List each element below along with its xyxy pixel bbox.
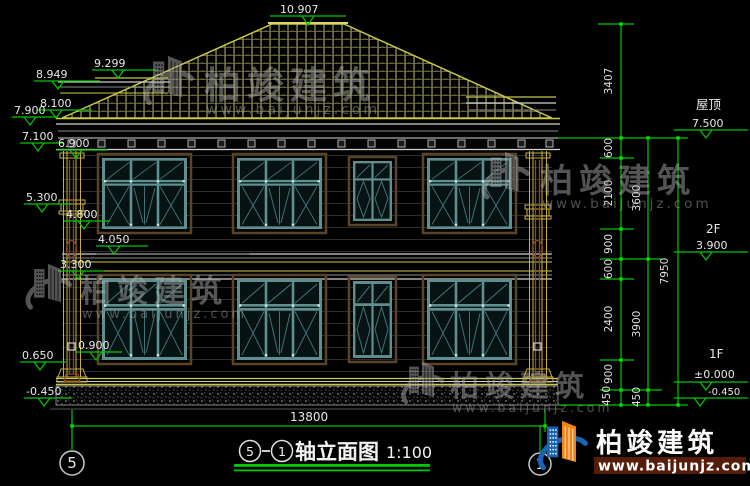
svg-text:7.100: 7.100 — [22, 130, 54, 143]
brand-logo-name: 柏竣建筑 — [596, 428, 718, 459]
right-dimension-lines: 3407 600 2100 900 600 2400 900 450 3600 … — [558, 22, 688, 407]
svg-text:9.299: 9.299 — [94, 57, 126, 70]
right-elevation-flags: 屋顶 7.500 2F 3.900 1F ±0.000 -0.450 — [674, 97, 748, 406]
svg-text:900: 900 — [603, 234, 615, 254]
window-1f-2 — [239, 281, 321, 359]
svg-text:-0.450: -0.450 — [26, 385, 61, 398]
svg-text:2400: 2400 — [603, 306, 615, 333]
flag-2f: 2F 3.900 — [674, 222, 748, 260]
svg-text:柏竣建筑: 柏竣建筑 — [540, 161, 696, 200]
svg-text:3.300: 3.300 — [60, 258, 92, 271]
dim-labels-col1: 3407 600 2100 900 600 2400 900 450 — [601, 68, 615, 406]
svg-text:10.907: 10.907 — [280, 3, 319, 16]
svg-text:www.baijunjz.com: www.baijunjz.com — [82, 307, 247, 322]
svg-text:4.050: 4.050 — [98, 233, 130, 246]
window-2f-1 — [104, 159, 186, 227]
svg-text:3.900: 3.900 — [696, 239, 728, 252]
main-cornice — [56, 118, 560, 151]
svg-text:www.baijunjz.com: www.baijunjz.com — [452, 400, 613, 415]
brand-logo: 柏竣建筑 www.baijunjz.com — [540, 421, 750, 475]
svg-text:1: 1 — [278, 444, 286, 459]
dim-label-col3: 7950 — [659, 258, 671, 285]
dim-labels-col2: 3600 3900 450 — [631, 185, 643, 407]
flag-roof: 屋顶 7.500 — [674, 97, 748, 138]
flag-base: -0.450 — [674, 387, 748, 406]
svg-text:3407: 3407 — [603, 68, 615, 95]
svg-text:13800: 13800 — [290, 410, 328, 424]
elevation-canvas: 10.907 9.299 8.949 8.100 7.900 7.100 6.9… — [0, 0, 750, 486]
svg-text:2F: 2F — [706, 222, 721, 236]
svg-text:柏竣建筑: 柏竣建筑 — [204, 64, 376, 107]
title-text: 轴立面图 — [295, 440, 379, 464]
svg-text:5: 5 — [67, 454, 77, 472]
svg-text:屋顶: 屋顶 — [696, 97, 722, 112]
svg-text:5.300: 5.300 — [26, 191, 58, 204]
axis-bubble-left: 5 — [60, 451, 84, 475]
svg-text:600: 600 — [603, 259, 615, 279]
svg-text:450: 450 — [631, 387, 643, 407]
svg-text:0.900: 0.900 — [78, 339, 110, 352]
brand-logo-url: www.baijunjz.com — [598, 459, 750, 475]
flag-1f: 1F ±0.000 — [674, 347, 748, 390]
svg-text:±0.000: ±0.000 — [694, 368, 735, 381]
svg-text:5: 5 — [246, 444, 254, 459]
svg-text:4.800: 4.800 — [66, 208, 98, 221]
title-scale: 1:100 — [386, 443, 432, 462]
svg-text:www.baijunjz.com: www.baijunjz.com — [206, 102, 380, 118]
svg-text:-0.450: -0.450 — [708, 387, 740, 398]
svg-text:900: 900 — [603, 364, 615, 384]
svg-text:0.650: 0.650 — [22, 349, 54, 362]
elevation-flag-top: 10.907 — [270, 3, 346, 25]
svg-text:柏竣建筑: 柏竣建筑 — [450, 369, 590, 403]
window-2f-2 — [239, 159, 321, 227]
svg-text:1F: 1F — [709, 347, 724, 361]
cad-elevation-drawing: 10.907 9.299 8.949 8.100 7.900 7.100 6.9… — [0, 0, 750, 486]
svg-text:8.949: 8.949 — [36, 68, 68, 81]
window-2f-narrow — [354, 162, 391, 220]
dimension-ticks — [619, 22, 679, 406]
svg-text:7.900: 7.900 — [14, 104, 46, 117]
svg-text:7.500: 7.500 — [692, 117, 724, 130]
svg-text:6.900: 6.900 — [58, 137, 90, 150]
window-1f-narrow — [354, 282, 391, 356]
svg-text:3900: 3900 — [631, 311, 643, 338]
brand-logo-icon — [540, 421, 585, 468]
svg-text:www.baijunjz.com: www.baijunjz.com — [542, 196, 712, 212]
svg-text:600: 600 — [603, 138, 615, 158]
window-1f-3 — [429, 281, 511, 359]
drawing-title: 5 1 轴立面图 1:100 — [234, 440, 432, 471]
svg-text:柏竣建筑: 柏竣建筑 — [80, 274, 228, 310]
